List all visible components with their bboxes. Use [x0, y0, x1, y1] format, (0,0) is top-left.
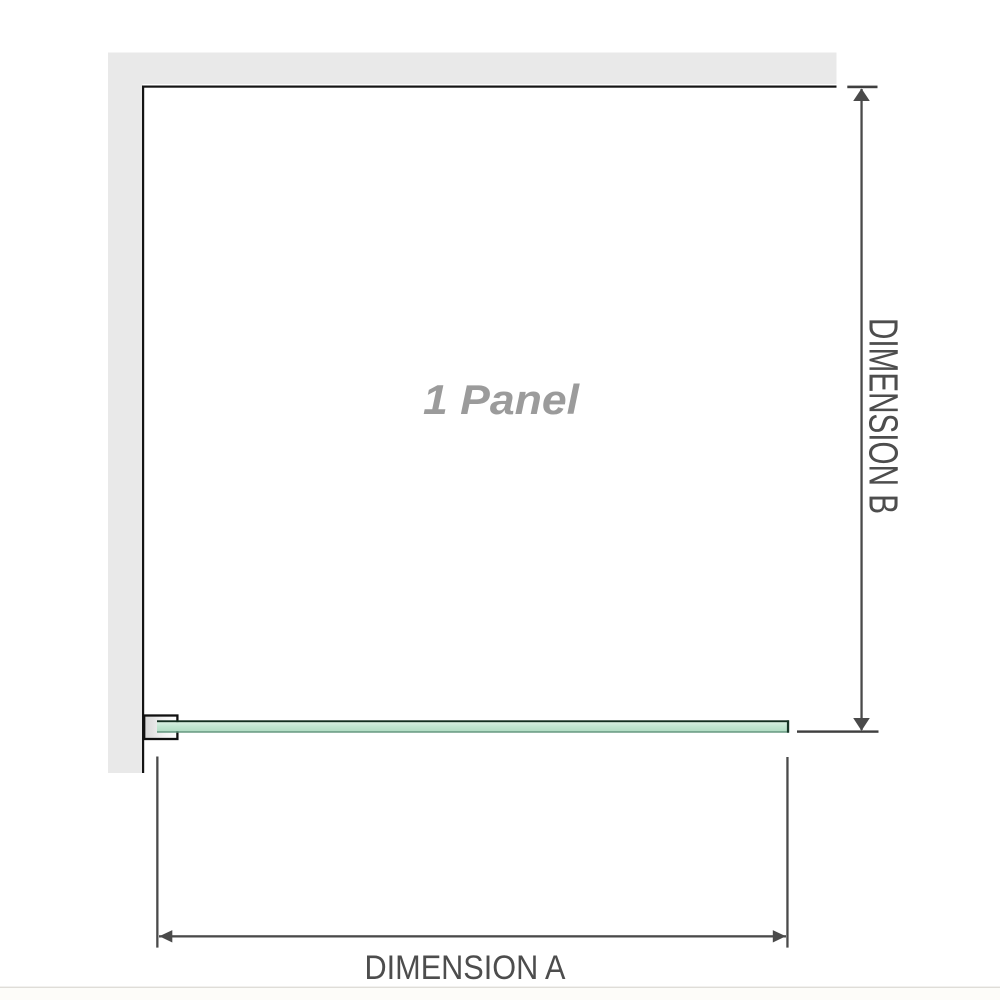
svg-text:DIMENSION B: DIMENSION B: [861, 318, 907, 514]
svg-text:DIMENSION A: DIMENSION A: [365, 949, 566, 987]
svg-text:1 Panel: 1 Panel: [423, 376, 580, 423]
